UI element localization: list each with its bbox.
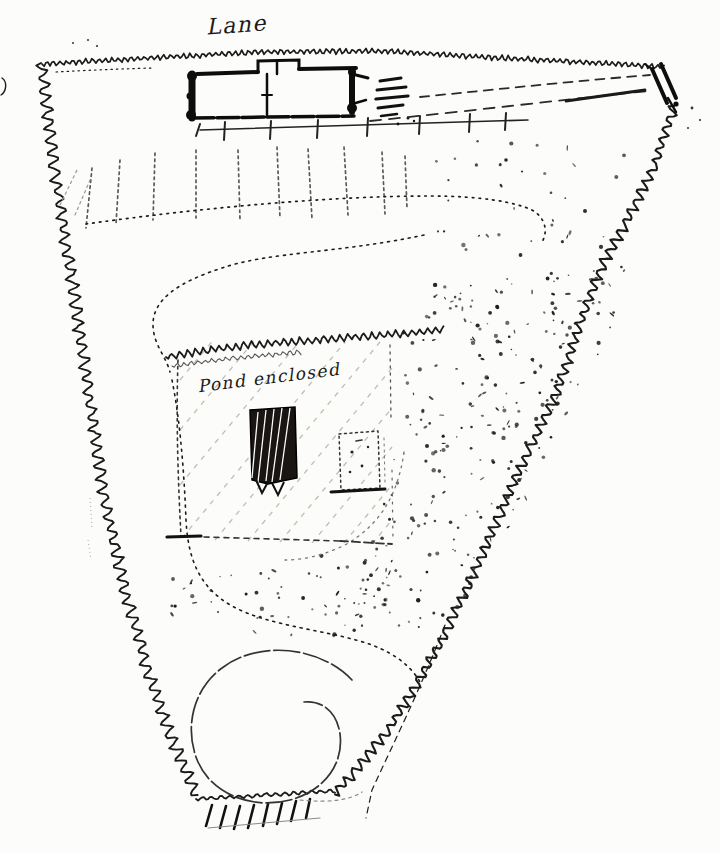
small-dotted-plot	[331, 431, 385, 492]
lane-side-paths	[370, 75, 650, 121]
top-boundary-inner-dots	[56, 68, 152, 72]
bed-hedge-scribble-2	[172, 350, 301, 367]
lane-label: Lane	[205, 10, 268, 39]
enclosed-garden-bed	[166, 326, 444, 544]
left-boundary-hedge	[36, 63, 197, 795]
bottom-boundary-wall	[196, 790, 335, 801]
tree-row	[60, 147, 407, 228]
crossing-path	[86, 196, 545, 242]
spiral-walk	[191, 650, 362, 803]
top-boundary-hedge	[42, 48, 664, 68]
bed-annotation: Pond enclosed	[196, 359, 342, 396]
bed-hedge-scribble	[166, 326, 444, 359]
right-boundary-inner-line	[366, 625, 445, 818]
margin-smudges	[88, 498, 92, 560]
orchard-stipple-upper	[435, 140, 626, 257]
right-boundary-hedge	[335, 106, 677, 796]
corner-gate	[645, 64, 679, 112]
dark-hatched-plot	[250, 407, 297, 495]
bottom-wall-hatching	[206, 799, 320, 829]
sketch-page: Lane Pond enclosed	[0, 0, 720, 853]
orchard-stipple-lower	[170, 554, 421, 638]
sketch-map-drawing: Lane Pond enclosed	[0, 0, 720, 853]
cottage-plan	[186, 60, 368, 120]
